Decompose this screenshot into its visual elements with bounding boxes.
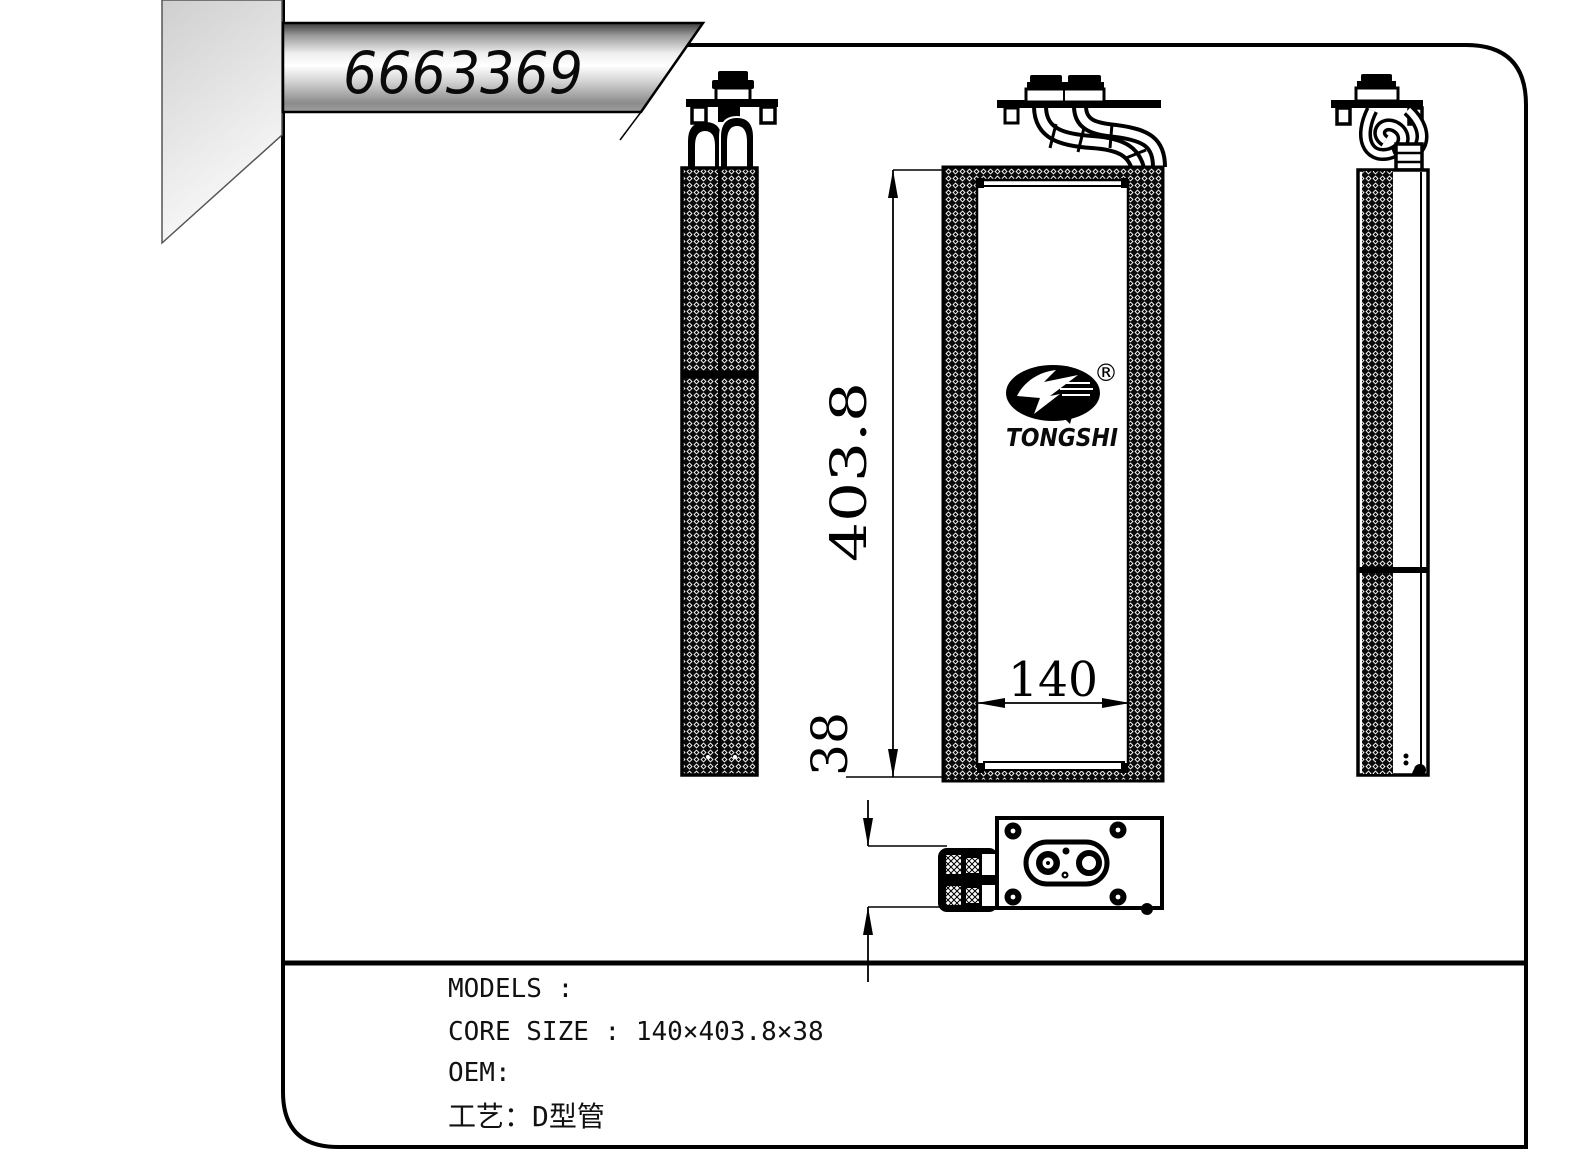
dimension-height-value: 403.8 — [820, 382, 878, 562]
dimension-depth-value: 38 — [801, 712, 859, 776]
outlet-pipes — [1040, 106, 1159, 174]
dimension-depth: 38 — [801, 712, 950, 982]
corner-fold — [162, 0, 282, 243]
front-view: ® TONGSHI 140 — [943, 75, 1163, 781]
port-boss — [1026, 842, 1107, 884]
side-view-left — [682, 71, 778, 775]
bottom-view — [938, 818, 1162, 915]
curled-tubes — [1365, 110, 1422, 170]
drawing-sheet: 6663369 — [0, 0, 1571, 1163]
pipe-connector — [938, 848, 998, 912]
technical-drawing: 6663369 — [0, 0, 1571, 1163]
brand-name: TONGSHI — [1006, 423, 1118, 452]
part-number: 6663369 — [343, 39, 583, 107]
spec-core-size: CORE SIZE : 140×403.8×38 — [448, 1017, 824, 1047]
spec-models: MODELS : — [448, 974, 573, 1004]
side-view-right — [1331, 74, 1428, 776]
spec-oem: OEM: — [448, 1058, 511, 1088]
title-banner: 6663369 — [283, 23, 703, 140]
spec-process: 工艺：D型管 — [448, 1100, 605, 1133]
registered-icon: ® — [1094, 359, 1118, 387]
dimension-width-value: 140 — [1008, 652, 1098, 708]
dimension-height: 403.8 — [820, 170, 945, 777]
spec-panel: MODELS : CORE SIZE : 140×403.8×38 OEM: 工… — [448, 974, 824, 1133]
